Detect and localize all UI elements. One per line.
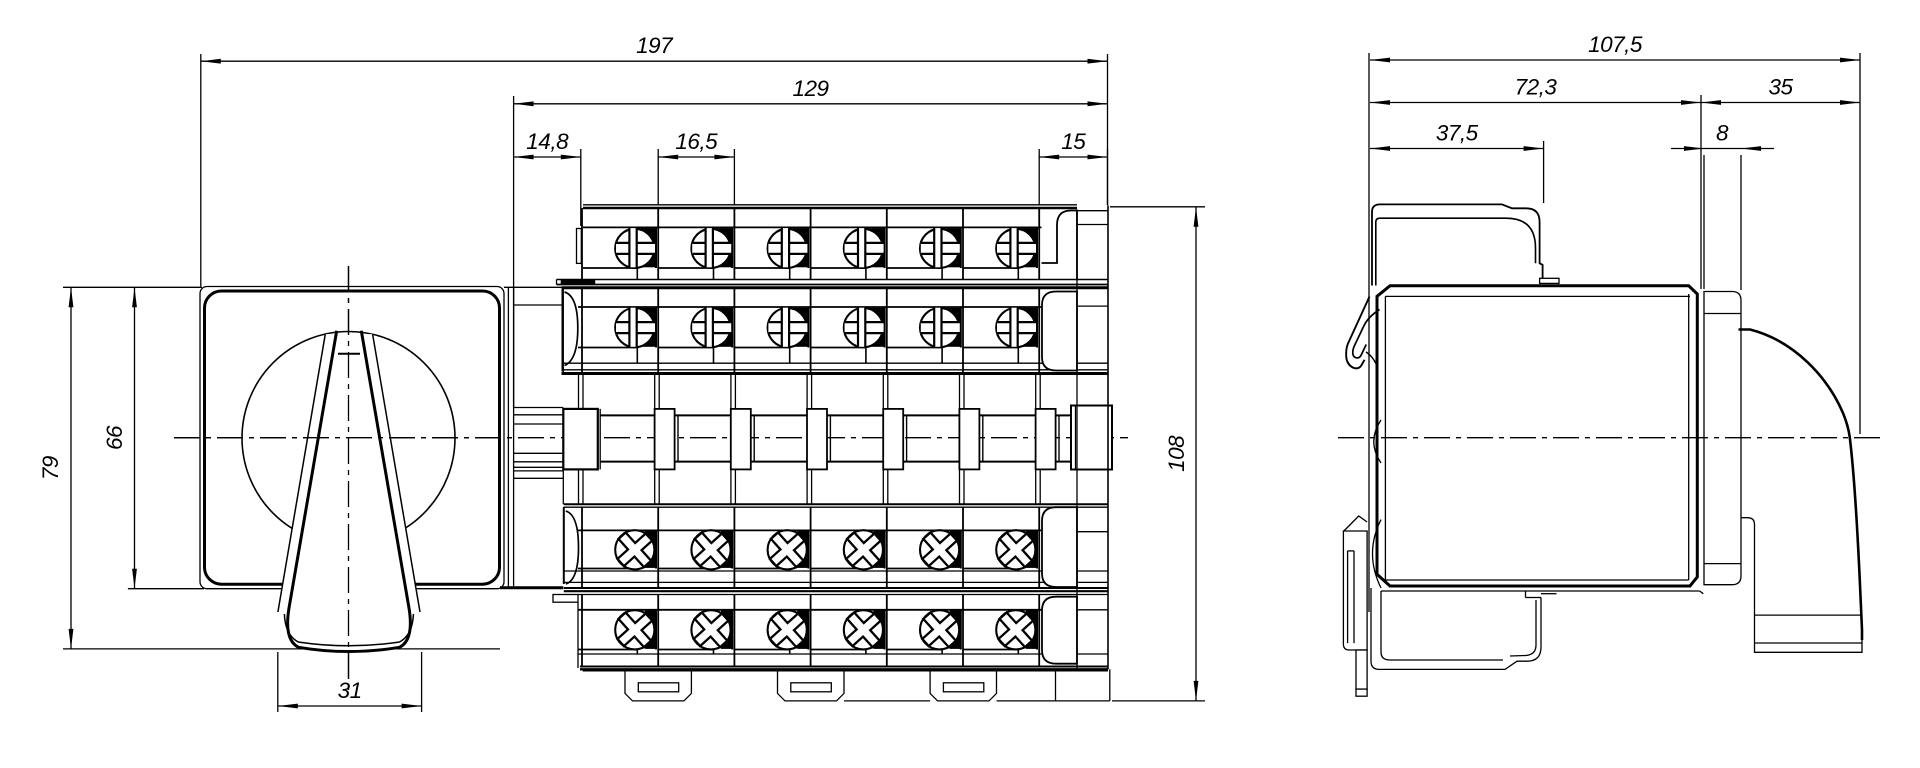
- svg-text:16,5: 16,5: [675, 129, 718, 154]
- svg-text:107,5: 107,5: [1588, 32, 1643, 57]
- svg-text:197: 197: [636, 33, 674, 58]
- svg-text:35: 35: [1768, 75, 1793, 100]
- svg-text:31: 31: [338, 678, 362, 703]
- svg-text:79: 79: [38, 455, 63, 480]
- svg-text:37,5: 37,5: [1436, 121, 1479, 146]
- svg-text:66: 66: [102, 425, 127, 450]
- svg-text:14,8: 14,8: [526, 129, 569, 154]
- svg-text:72,3: 72,3: [1515, 75, 1558, 100]
- svg-text:15: 15: [1061, 129, 1086, 154]
- svg-text:108: 108: [1164, 435, 1189, 472]
- svg-text:129: 129: [792, 76, 829, 101]
- svg-text:8: 8: [1716, 121, 1729, 146]
